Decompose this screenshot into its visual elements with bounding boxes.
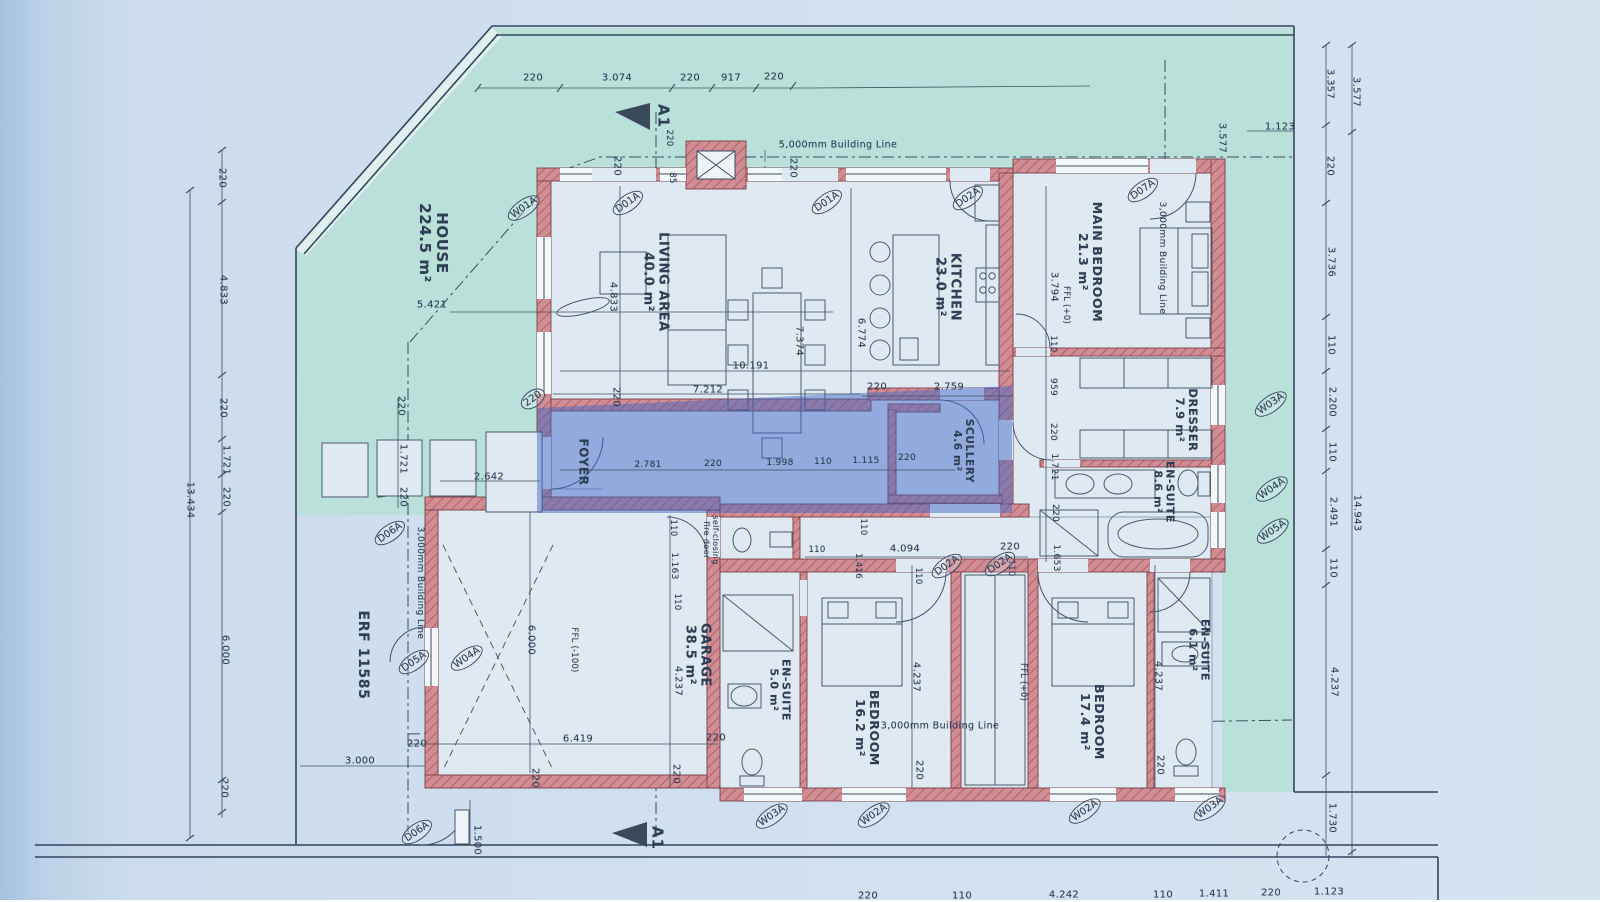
building-line-top: 5,000mm Building Line <box>779 141 897 152</box>
dim: 6.000 <box>525 625 536 655</box>
dim: 5.421 <box>417 299 447 310</box>
window-tag: W05A <box>1253 513 1294 549</box>
dim: 220 <box>706 732 726 743</box>
dim-tag: 220 <box>517 384 549 414</box>
dim: 1.730 <box>1326 803 1337 833</box>
dim: 220 <box>663 129 673 146</box>
dim: 220 <box>1048 423 1058 441</box>
room-label-bedroom-162: BEDROOM 16.2 m² <box>853 690 881 766</box>
window-tag: W04A <box>447 640 488 676</box>
room-label-living-area: LIVING AREA 40.0 m² <box>640 232 669 332</box>
dim: 220 <box>529 768 540 788</box>
building-line-bottom: 3,000mm Building Line <box>881 722 999 733</box>
dim: 110 <box>814 457 832 467</box>
fire-door-note: self-closing fire door <box>701 515 719 564</box>
dim: 220 <box>216 168 227 188</box>
dim: 220 <box>1324 156 1335 176</box>
dim: 220 <box>407 738 427 749</box>
door-tag: D02A <box>928 549 967 583</box>
dim: 4.237 <box>1152 661 1163 691</box>
floor-plan-canvas: HOUSE 224.5 m²LIVING AREA 40.0 m²KITCHEN… <box>0 0 1600 900</box>
dim: 220 <box>395 396 406 416</box>
dim: 4.237 <box>910 662 921 692</box>
room-label-main-bedroom: MAIN BEDROOM 21.3 m² <box>1076 202 1104 323</box>
dim: 110 <box>1327 558 1338 578</box>
dim: 220 <box>898 453 916 463</box>
dim: 110 <box>1047 335 1057 352</box>
dim: 7.374 <box>793 326 804 356</box>
dim: 6.774 <box>855 318 866 348</box>
room-label-ensuite-main: EN-SUITE 8.6 m² <box>1151 461 1176 523</box>
door-tag: D01A <box>808 185 847 219</box>
dim: 4.833 <box>217 275 228 305</box>
dim: 1.416 <box>852 553 862 579</box>
window-tag: W03A <box>1251 386 1292 422</box>
dim: 220 <box>1154 755 1165 775</box>
dim: 13.434 <box>184 482 195 519</box>
dim: 3.577 <box>1350 77 1361 107</box>
dim: 2.200 <box>1326 387 1337 417</box>
dim: 220 <box>680 72 700 83</box>
dim: 220 <box>1050 504 1060 522</box>
dim: 110 <box>1153 889 1173 900</box>
ffl-garage: FFL (-100) <box>568 627 578 672</box>
room-label-kitchen: KITCHEN 23.0 m² <box>932 253 961 321</box>
ffl-main-bedroom: FFL (+0) <box>1060 286 1070 324</box>
dim: 1.721 <box>220 445 231 475</box>
dim: 917 <box>721 72 741 83</box>
dim: 4.237 <box>1328 667 1339 697</box>
dim: 4.242 <box>1049 889 1079 900</box>
dim: 220 <box>610 387 621 407</box>
dim: 220 <box>787 158 798 178</box>
building-line-left: 3,000mm Building Line <box>415 527 425 640</box>
dim: 6.000 <box>219 635 230 665</box>
room-label-dresser: DRESSER 7.9 m² <box>1173 388 1199 451</box>
dim: 4.833 <box>607 282 618 312</box>
room-label-house: HOUSE 224.5 m² <box>416 203 450 283</box>
dim: 220 <box>704 459 722 469</box>
dim: 220 <box>218 778 229 798</box>
dim: 3.000 <box>345 755 375 766</box>
room-label-ensuite-61: EN-SUITE 6.1 m² <box>1186 619 1211 681</box>
dim: 2.781 <box>634 460 661 470</box>
dim: 110 <box>1325 335 1336 355</box>
room-label-foyer: FOYER <box>576 438 589 485</box>
building-line-right: 3,000mm Building Line <box>1157 202 1167 315</box>
section-marker-a1-bottom: A1 <box>649 826 666 850</box>
dim: 3.074 <box>602 72 632 83</box>
door-tag: D01A <box>609 186 648 220</box>
dim: 110 <box>671 593 681 610</box>
dim: 220 <box>217 398 228 418</box>
dim: 10.191 <box>733 360 770 371</box>
dim: 4.237 <box>672 666 683 696</box>
dim: 1.163 <box>669 552 679 579</box>
dim: 2.642 <box>474 471 504 482</box>
door-tag: D02A <box>949 181 988 215</box>
dim: 220 <box>397 487 408 507</box>
room-label-scullery: SCULLERY 4.6 m² <box>950 419 974 483</box>
dim: 220 <box>764 71 784 82</box>
window-tag: W03A <box>1190 790 1231 826</box>
dim: 220 <box>523 72 543 83</box>
door-tag: D06A <box>371 516 410 550</box>
dim: 1.998 <box>766 458 793 468</box>
dim: 7.212 <box>693 384 723 395</box>
dim: 1.721 <box>397 444 408 474</box>
dim: 110 <box>857 518 867 535</box>
dim: 14.943 <box>1351 495 1362 532</box>
dim: 3.736 <box>1325 247 1336 277</box>
dim: 85 <box>666 172 676 183</box>
room-label-bedroom-174: BEDROOM 17.4 m² <box>1078 684 1106 760</box>
dim: 110 <box>1326 442 1337 462</box>
dim: 220 <box>1261 887 1281 898</box>
dim: 220 <box>913 760 924 780</box>
window-tag: W04A <box>1252 471 1293 507</box>
window-tag: W01A <box>504 190 545 226</box>
door-tag: D05A <box>395 645 434 679</box>
dim: 1.115 <box>852 456 879 466</box>
dim: 2.491 <box>1327 497 1338 527</box>
dim: 6.419 <box>563 733 593 744</box>
dim: 110 <box>667 519 677 536</box>
dim: 3.357 <box>1324 69 1335 99</box>
room-label-garage: GARAGE 38.5 m² <box>682 623 711 687</box>
section-marker-a1-top: A1 <box>655 104 672 128</box>
dim: 3.794 <box>1048 272 1059 302</box>
door-tag: D06A <box>398 815 437 849</box>
ffl-bedroom-wing: FFL (+0) <box>1017 663 1027 701</box>
window-tag: W03A <box>752 798 793 834</box>
dim: 1.411 <box>1199 888 1229 899</box>
dim: 220 <box>670 764 681 784</box>
dim: 1.721 <box>1049 453 1059 480</box>
dim: 110 <box>808 546 825 556</box>
room-label-ensuite-5: EN-SUITE 5.0 m² <box>767 659 792 721</box>
dim: 1.123 <box>1314 886 1344 897</box>
dim: 1.500 <box>471 825 482 855</box>
dim: 959 <box>1048 378 1058 396</box>
site-label-erf: ERF 11585 <box>354 611 370 700</box>
dim: 3.577 <box>1216 123 1227 153</box>
dim: 220 <box>611 156 622 176</box>
dim: 2.759 <box>934 381 964 392</box>
dim: 4.094 <box>890 543 920 554</box>
dim: 110 <box>912 567 922 584</box>
plan-labels: HOUSE 224.5 m²LIVING AREA 40.0 m²KITCHEN… <box>0 0 1600 900</box>
window-tag: W02A <box>854 797 895 833</box>
dim: 220 <box>867 381 887 392</box>
window-tag: W02A <box>1065 793 1106 829</box>
dim: 1.123 <box>1265 121 1295 132</box>
dim: 220 <box>220 487 231 507</box>
dim: 1.653 <box>1051 544 1061 571</box>
